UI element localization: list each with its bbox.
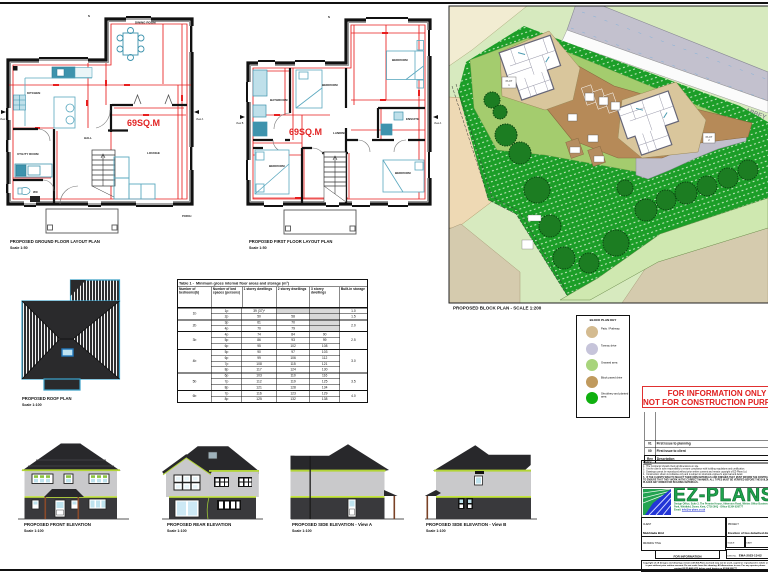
svg-text:PLOT: PLOT — [506, 79, 513, 83]
svg-text:Scale 1:100: Scale 1:100 — [426, 529, 446, 533]
svg-text:View A: View A — [434, 122, 442, 125]
svg-text:UTILITY ROOM: UTILITY ROOM — [17, 152, 39, 156]
svg-text:N: N — [328, 15, 330, 19]
svg-text:PROPOSED REAR ELEVATION: PROPOSED REAR ELEVATION — [167, 522, 231, 527]
svg-text:View B: View B — [236, 122, 244, 125]
svg-text:Scale 1:50: Scale 1:50 — [10, 246, 28, 250]
svg-text:BEDROOM: BEDROOM — [322, 83, 338, 87]
svg-text:BEDROOM: BEDROOM — [392, 58, 408, 62]
svg-text:69SQ.M: 69SQ.M — [127, 118, 160, 128]
svg-text:View B: View B — [0, 118, 8, 121]
svg-text:PORCH: PORCH — [182, 214, 191, 218]
svg-text:Scale 1:50: Scale 1:50 — [249, 246, 267, 250]
svg-text:PROPOSED FRONT ELEVATION: PROPOSED FRONT ELEVATION — [24, 522, 91, 527]
svg-text:N: N — [88, 14, 90, 18]
svg-text:BATHROOM: BATHROOM — [270, 98, 288, 102]
svg-text:LOUNGE: LOUNGE — [147, 151, 160, 155]
svg-text:DINING ROOM: DINING ROOM — [135, 21, 156, 25]
svg-text:PROPOSED BLOCK PLAN - SCALE 1:: PROPOSED BLOCK PLAN - SCALE 1:200 — [453, 306, 542, 311]
svg-text:KITCHEN: KITCHEN — [27, 91, 40, 95]
svg-text:PROPOSED SIDE ELEVATION - View: PROPOSED SIDE ELEVATION - View B — [426, 522, 506, 527]
svg-text:BEDROOM: BEDROOM — [395, 171, 411, 175]
svg-text:PROPOSED SIDE ELEVATION - View: PROPOSED SIDE ELEVATION - View A — [292, 522, 373, 527]
svg-text:WC: WC — [33, 190, 39, 194]
svg-text:LANDING: LANDING — [333, 131, 347, 135]
svg-text:PROPOSED GROUND FLOOR LAYOUT P: PROPOSED GROUND FLOOR LAYOUT PLAN — [10, 239, 100, 244]
svg-text:69SQ.M: 69SQ.M — [289, 127, 322, 137]
svg-text:View A: View A — [196, 118, 204, 121]
svg-text:Scale 1:100: Scale 1:100 — [292, 529, 312, 533]
svg-text:PROPOSED ROOF PLAN: PROPOSED ROOF PLAN — [22, 396, 72, 401]
svg-text:ENSUITE: ENSUITE — [406, 117, 419, 121]
svg-text:HALL: HALL — [84, 136, 92, 140]
svg-text:Scale 1:100: Scale 1:100 — [167, 529, 187, 533]
svg-text:PROPOSED FIRST FLOOR LAYOUT PL: PROPOSED FIRST FLOOR LAYOUT PLAN — [249, 239, 332, 244]
svg-text:Scale 1:100: Scale 1:100 — [24, 529, 44, 533]
svg-text:BEDROOM: BEDROOM — [269, 164, 285, 168]
svg-text:Scale 1:100: Scale 1:100 — [22, 403, 42, 407]
